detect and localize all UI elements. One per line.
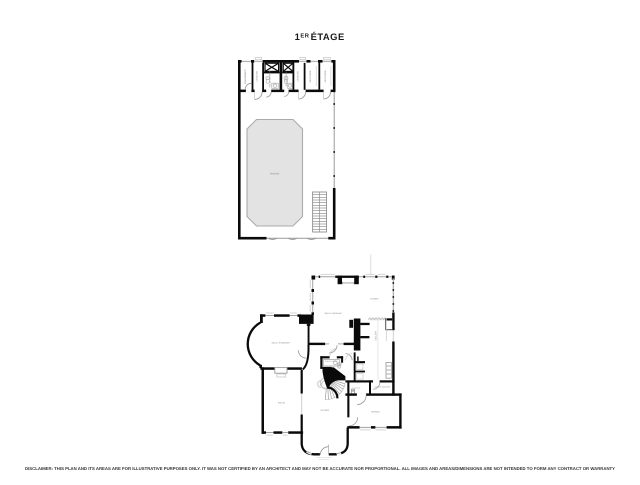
svg-text:DISCLAIMER: THIS PLAN AND ITS: DISCLAIMER: THIS PLAN AND ITS AREAS ARE … [25,466,615,471]
svg-text:SALLE DE BAIN: SALLE DE BAIN [269,70,272,87]
svg-text:RANGEMENT: RANGEMENT [244,69,247,84]
svg-text:ENTRÉE: ENTRÉE [321,409,330,412]
svg-text:PISCINE: PISCINE [270,172,280,175]
svg-text:COULOIR: COULOIR [297,71,300,82]
svg-text:SALLE FAMILIALE: SALLE FAMILIALE [325,312,343,315]
svg-text:CELLIER: CELLIER [374,331,377,341]
svg-text:SALLE D’EAU: SALLE D’EAU [325,360,338,363]
svg-text:SALON: SALON [278,402,286,405]
svg-text:CUISINE: CUISINE [370,298,379,301]
svg-text:GARDE-MANGER: GARDE-MANGER [374,386,390,389]
svg-text:VESTIAIRE: VESTIAIRE [309,70,312,82]
svg-text:SALLE À MANGER: SALLE À MANGER [272,341,291,344]
svg-text:BUREAU: BUREAU [371,410,380,413]
svg-text:COULOIR: COULOIR [256,71,259,82]
svg-text:VESTIAIRE: VESTIAIRE [324,70,327,82]
